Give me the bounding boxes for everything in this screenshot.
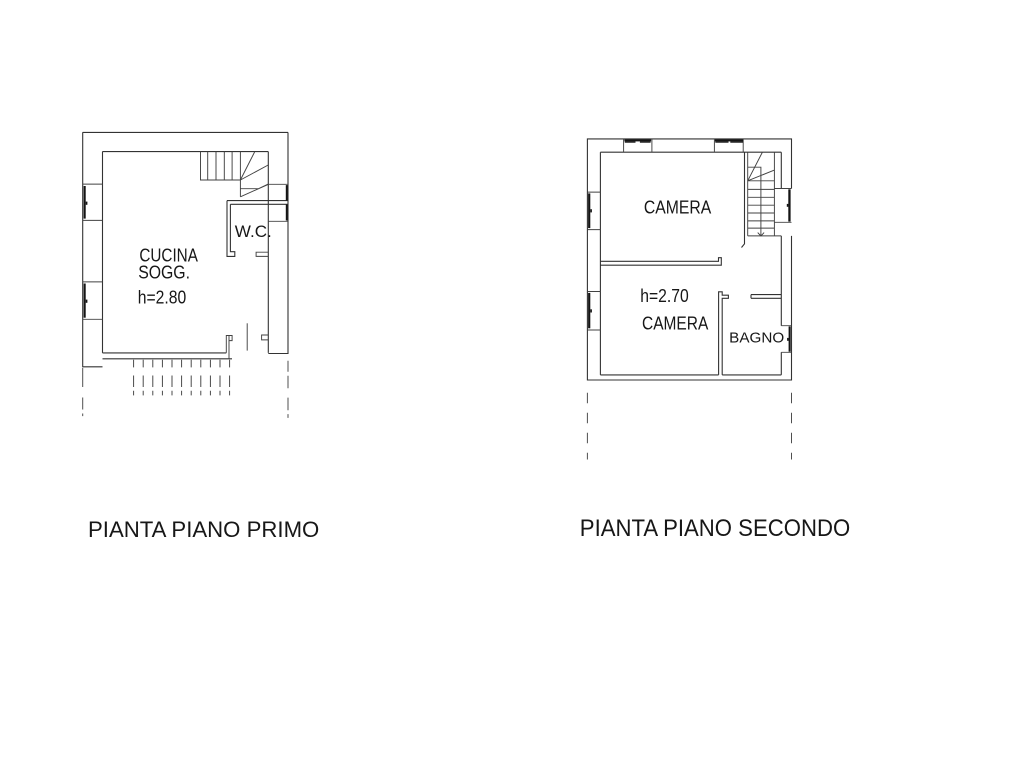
svg-text:SOGG.: SOGG. <box>138 263 190 283</box>
svg-text:CAMERA: CAMERA <box>644 198 711 218</box>
svg-text:PIANTA PIANO PRIMO: PIANTA PIANO PRIMO <box>88 517 319 542</box>
svg-text:h=2.80: h=2.80 <box>138 287 186 307</box>
svg-text:W.C.: W.C. <box>235 223 272 241</box>
svg-text:BAGNO: BAGNO <box>729 330 784 347</box>
svg-text:PIANTA PIANO SECONDO: PIANTA PIANO SECONDO <box>580 515 850 542</box>
svg-text:h=2.70: h=2.70 <box>640 285 688 306</box>
svg-text:CAMERA: CAMERA <box>642 312 709 333</box>
